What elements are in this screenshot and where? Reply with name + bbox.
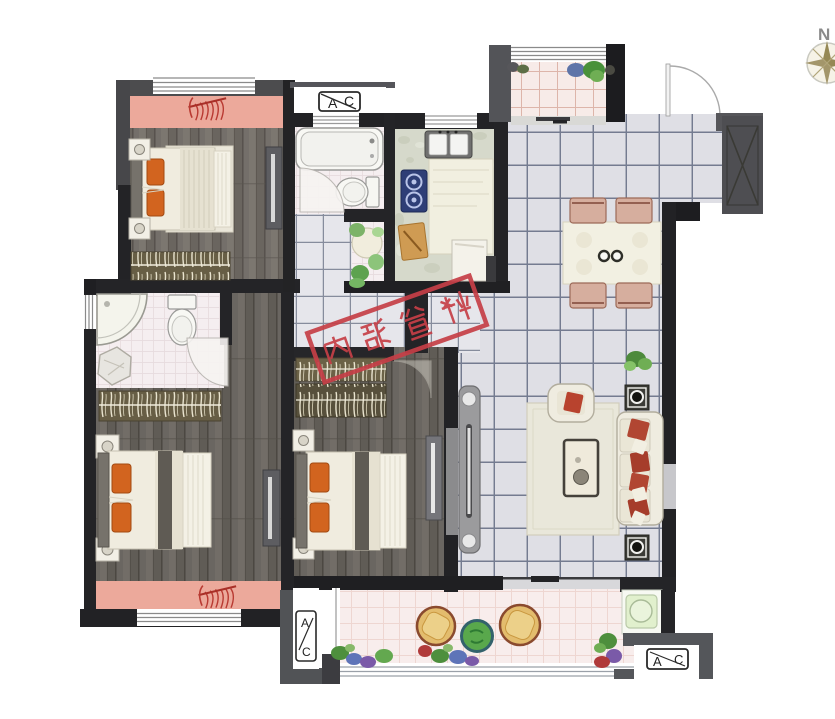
svg-text:N: N — [818, 25, 830, 44]
svg-text:A: A — [301, 616, 309, 630]
svg-text:C: C — [302, 645, 311, 659]
